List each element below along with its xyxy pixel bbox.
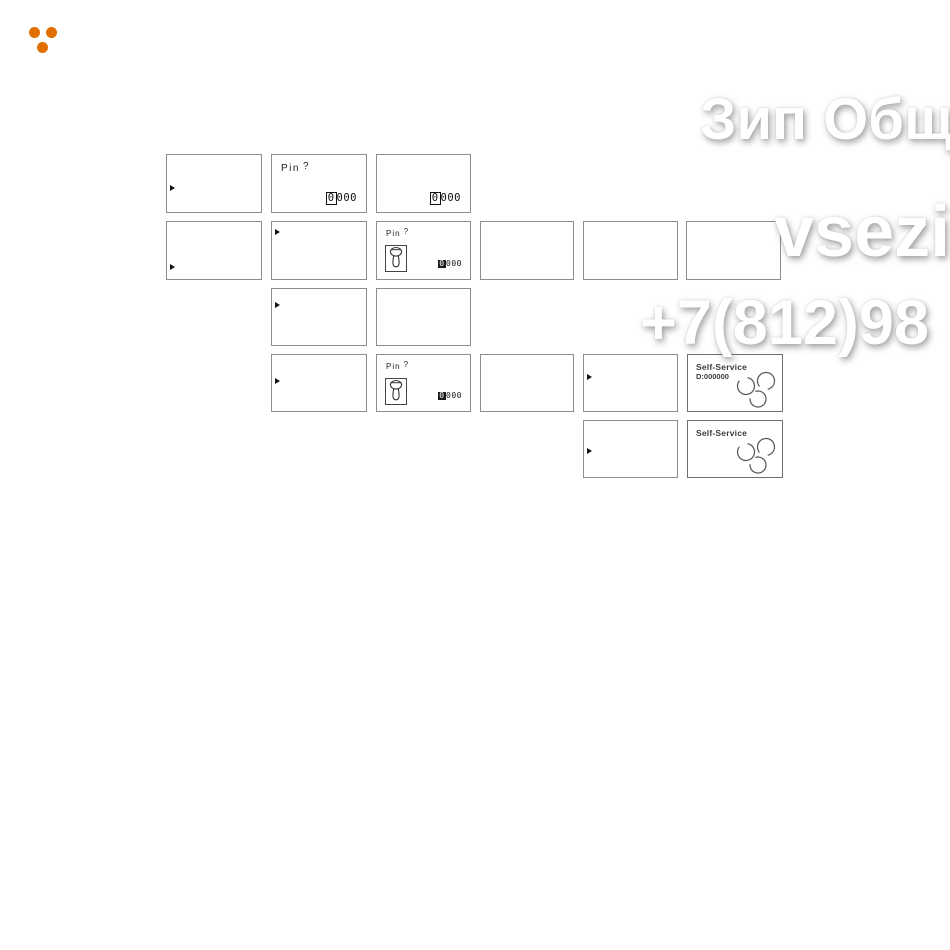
logo-dot-icon (37, 42, 48, 53)
question-mark: ? (404, 360, 409, 369)
service-circles-icon (733, 367, 779, 412)
watermark-text-2: vsezip (774, 196, 950, 268)
code-rest: 000 (441, 192, 461, 204)
code-cursor: 0 (326, 192, 337, 205)
pin-prompt: Pin? (386, 229, 409, 238)
pin-code: 0000 (326, 192, 357, 205)
flow-arrow-icon (275, 302, 280, 308)
flow-arrow-icon (587, 448, 592, 454)
manual-page: Pin?00000000Pin?0000Pin?0000Self-Service… (0, 0, 950, 950)
brand-logo (29, 27, 58, 54)
screen-1-3: 0000 (376, 154, 471, 213)
device-code: D:000000 (696, 372, 729, 381)
key-icon-box (385, 245, 407, 272)
screen-4-2: Pin?0000 (376, 354, 471, 412)
code-cursor: 0 (438, 392, 446, 400)
screen-5-1 (583, 420, 678, 478)
service-circles-icon (733, 433, 779, 478)
code-rest: 000 (446, 391, 462, 400)
flow-arrow-icon (275, 229, 280, 235)
screen-2-4 (480, 221, 574, 280)
flow-arrow-icon (170, 264, 175, 270)
pin-prompt: Pin? (386, 362, 409, 371)
pin-label: Pin (386, 229, 401, 238)
code-cursor: 0 (438, 260, 446, 268)
code-rest: 000 (337, 192, 357, 204)
question-mark: ? (303, 161, 310, 172)
screen-4-3 (480, 354, 574, 412)
screen-2-6 (686, 221, 781, 280)
screen-4-1 (271, 354, 367, 412)
key-icon (386, 246, 406, 271)
key-icon-box (385, 378, 407, 405)
screen-2-3: Pin?0000 (376, 221, 471, 280)
screen-1-1 (166, 154, 262, 213)
pin-code: 0000 (430, 192, 461, 205)
pin-code: 0000 (438, 259, 462, 268)
screen-5-2: Self-Service (687, 420, 783, 478)
key-icon (386, 379, 406, 404)
pin-label: Pin (386, 362, 401, 371)
screen-2-2 (271, 221, 367, 280)
screen-3-1 (271, 288, 367, 346)
watermark-text-1: Зип Общ (700, 91, 950, 149)
logo-dot-icon (46, 27, 57, 38)
screen-1-2: Pin?0000 (271, 154, 367, 213)
flow-arrow-icon (170, 185, 175, 191)
pin-code: 0000 (438, 391, 462, 400)
screen-4-5: Self-ServiceD:000000 (687, 354, 783, 412)
pin-prompt: Pin? (281, 163, 310, 174)
logo-dot-icon (29, 27, 40, 38)
code-rest: 000 (446, 259, 462, 268)
screen-4-4 (583, 354, 678, 412)
pin-label: Pin (281, 163, 300, 174)
flow-arrow-icon (275, 378, 280, 384)
screen-2-1 (166, 221, 262, 280)
question-mark: ? (404, 227, 409, 236)
flow-arrow-icon (587, 374, 592, 380)
screen-3-2 (376, 288, 471, 346)
watermark-text-3: +7(812)98 (640, 292, 929, 355)
screen-2-5 (583, 221, 678, 280)
code-cursor: 0 (430, 192, 441, 205)
